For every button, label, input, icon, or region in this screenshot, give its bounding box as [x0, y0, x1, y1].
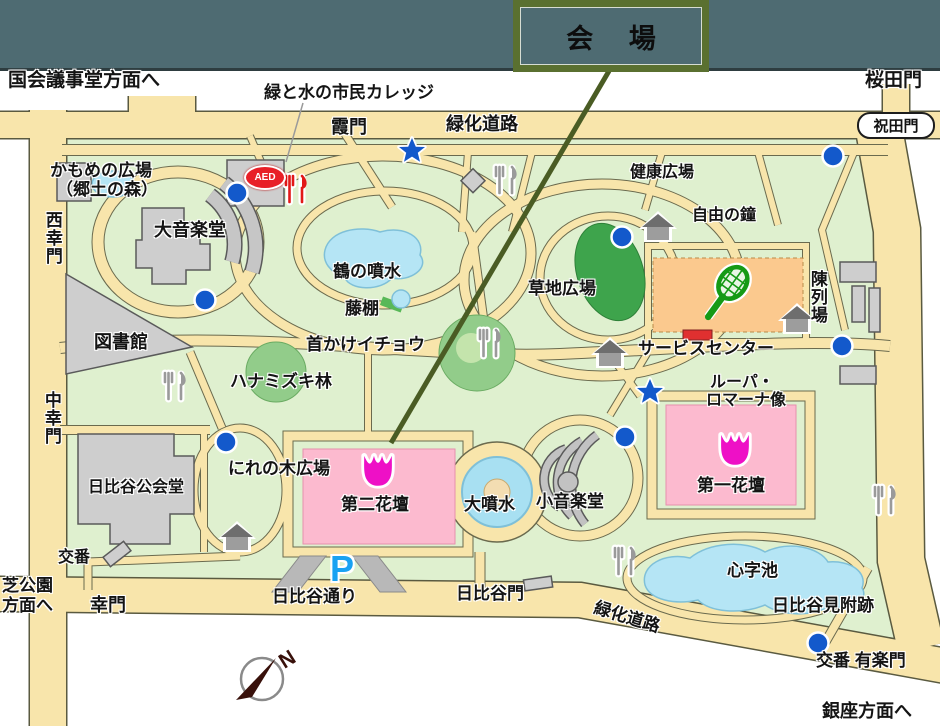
kamome-pond: [92, 171, 134, 197]
aed-badge: AED: [244, 165, 286, 190]
venue-callout-label: 会 場: [552, 17, 670, 56]
flowerbed-tulip-icon: [721, 435, 749, 465]
dot-marker-icon: [227, 183, 248, 204]
top-banner: [0, 0, 940, 71]
court-bench: [683, 330, 712, 340]
shukuden-gate-badge: 祝田門: [857, 112, 935, 139]
dot-marker-icon: [808, 633, 829, 654]
dot-marker-icon: [832, 336, 853, 357]
dogwood-grove: [246, 342, 306, 402]
dot-marker-icon: [216, 432, 237, 453]
dot-marker-icon: [615, 427, 636, 448]
park-map-graphic: [0, 0, 940, 726]
dot-marker-icon: [195, 290, 216, 311]
parking-icon: P: [330, 548, 354, 590]
shukuden-gate-label: 祝田門: [873, 115, 918, 136]
hibiya-park-venue-map: 会 場 祝田門 AED P N 国会議事堂方面へ桜田門緑と水の市民カレッジ霞門緑…: [0, 0, 940, 726]
venue-callout: 会 場: [513, 0, 709, 72]
dot-marker-icon: [612, 227, 633, 248]
flowerbed-tulip-icon: [364, 456, 392, 486]
fountain-center: [484, 479, 510, 505]
aed-label: AED: [254, 172, 275, 183]
dot-marker-icon: [823, 146, 844, 167]
parking-label: P: [330, 548, 354, 589]
